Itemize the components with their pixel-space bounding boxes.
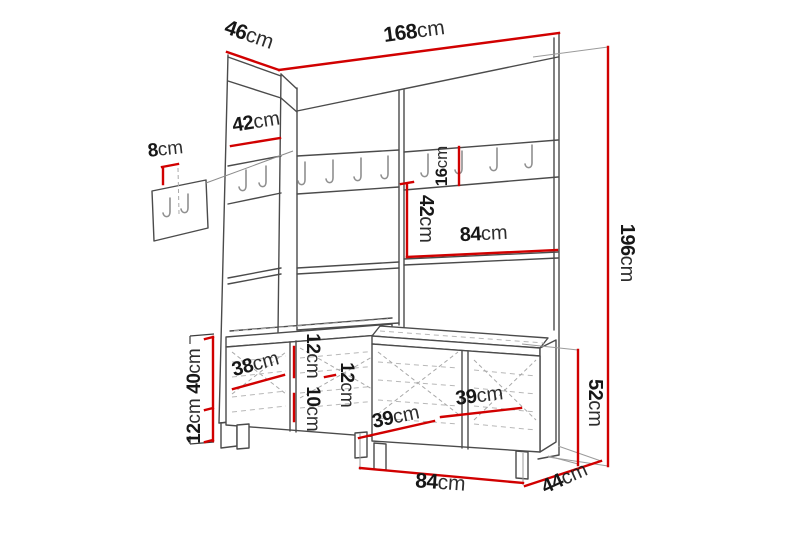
bench-leg <box>237 424 249 449</box>
dim-drawer-front-upper-label: 12cm <box>302 333 323 378</box>
dim-line-wall-panel-depth <box>162 164 178 184</box>
dim-bench-total-height-label: 52cm <box>584 379 606 427</box>
dim-middle-section-label: 42cm <box>415 195 437 243</box>
dim-line-top-depth <box>227 52 279 70</box>
bench-leg <box>374 443 386 470</box>
dim-bench-depth-label: 44cm <box>538 459 591 499</box>
dim-top-depth-label: 46cm <box>222 16 277 54</box>
diagram-canvas: 46cm 168cm 42cm 8cm 16cm 42cm 84cm 38cm … <box>0 0 800 533</box>
dim-left-upper-section-label: 42cm <box>231 107 282 136</box>
dim-line-left-upper-section <box>231 138 280 146</box>
dim-line-middle-section <box>401 182 413 257</box>
dim-line-bench-height <box>205 337 213 442</box>
dim-wall-panel-depth-label: 8cm <box>147 137 184 162</box>
dim-hook-rail-height-label: 16cm <box>432 146 451 187</box>
coat-hooks <box>239 145 532 191</box>
furniture-dimension-diagram: 46cm 168cm 42cm 8cm 16cm 42cm 84cm 38cm … <box>0 0 800 533</box>
dim-bench-width-label: 84cm <box>415 469 467 495</box>
dim-total-height-label: 196cm <box>616 224 638 283</box>
bench-leg <box>516 451 528 479</box>
dim-panel-half-width-label: 84cm <box>459 222 508 246</box>
dim-leg-height-label: 12cm <box>184 398 205 443</box>
dim-bench-body-height-label: 40cm <box>184 348 205 393</box>
right-bench-side <box>540 340 556 452</box>
dim-drawer-front-right-label: 12cm <box>336 362 357 407</box>
dim-total-width-label: 168cm <box>382 16 446 47</box>
dim-drawer-front-lower-label: 10cm <box>302 386 323 431</box>
